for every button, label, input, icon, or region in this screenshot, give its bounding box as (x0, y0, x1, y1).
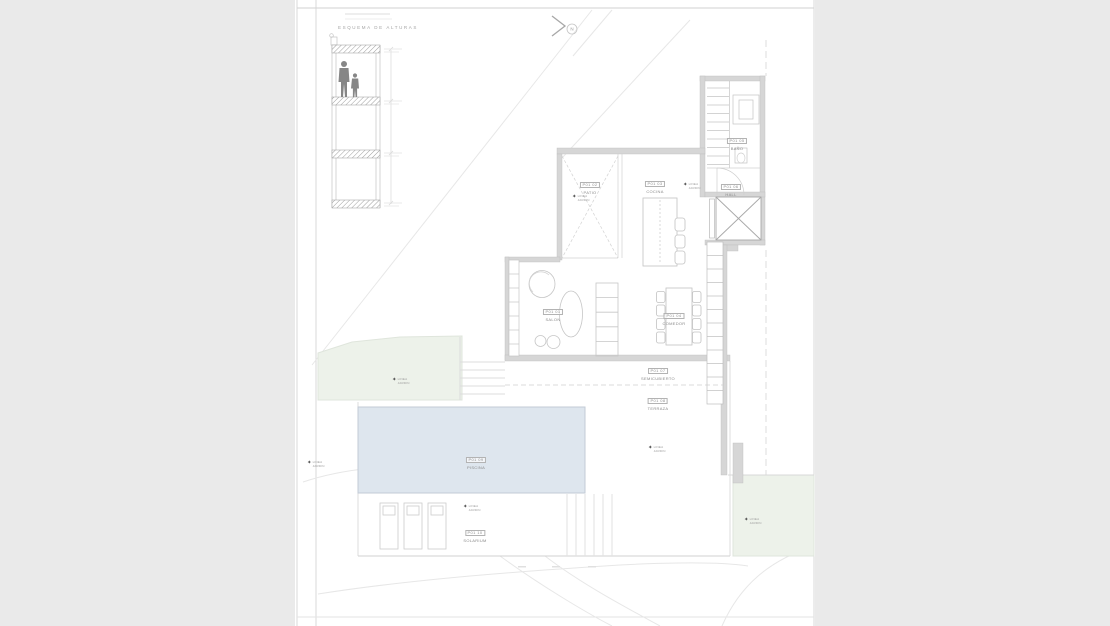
kitchen-island (643, 198, 685, 266)
north-label: N (570, 27, 573, 32)
louver-strip (707, 242, 723, 404)
elevator-shaft (710, 197, 762, 240)
plant-marker-garden-right: ✦ LINEAJARDIN (744, 518, 762, 526)
room-label-terraza: P01 08TERRAZA (648, 389, 669, 411)
sparkle-icon: ✦ (572, 195, 577, 201)
window-strip (509, 260, 519, 356)
sparkle-icon: ✦ (392, 378, 397, 384)
sparkle-icon: ✦ (744, 518, 749, 524)
human-figures (339, 61, 360, 97)
room-label-hall: P01 06HALL (721, 175, 741, 197)
room-label-semicubierto: P01 07SEMICUBIERTO (641, 359, 675, 381)
plant-marker-solarium: ✦ LINEAJARDIN (463, 505, 481, 513)
sun-loungers (380, 503, 446, 549)
plant-marker-margin-left: ✦ LINEAJARDIN (307, 461, 325, 469)
plant-marker-terraza: ✦ LINEAJARDIN (648, 446, 666, 454)
staircase (707, 81, 761, 168)
architectural-plan-viewer: { "colors": { "canvas": "#eaeaea", "pape… (0, 0, 1110, 626)
plant-marker-garden-left: ✦ LINEAJARDIN (392, 378, 410, 386)
room-label-piscina: P01 09PISCINA (466, 448, 486, 470)
room-label-salon: P01 01SALON (543, 300, 563, 322)
sparkle-icon: ✦ (648, 446, 653, 452)
plant-marker-patio: ✦ LINEAJARDIN (572, 195, 590, 203)
room-label-bano: P01 05BAÑO (727, 129, 747, 151)
sparkle-icon: ✦ (307, 461, 312, 467)
sparkle-icon: ✦ (683, 183, 688, 189)
plant-marker-cocina: ✦ LINEAJARDIN (683, 183, 701, 191)
room-label-patio: P01 02PATIO (580, 173, 600, 195)
room-label-comedor: P01 04COMEDOR (663, 304, 686, 326)
room-label-cocina: P01 03COCINA (645, 172, 665, 194)
section-title: ESQUEMA DE ALTURAS (338, 25, 418, 30)
room-label-solarium: P01 10SOLARIUM (463, 521, 486, 543)
patio-void (562, 154, 622, 258)
section-detail (330, 14, 402, 208)
sparkle-icon: ✦ (463, 505, 468, 511)
